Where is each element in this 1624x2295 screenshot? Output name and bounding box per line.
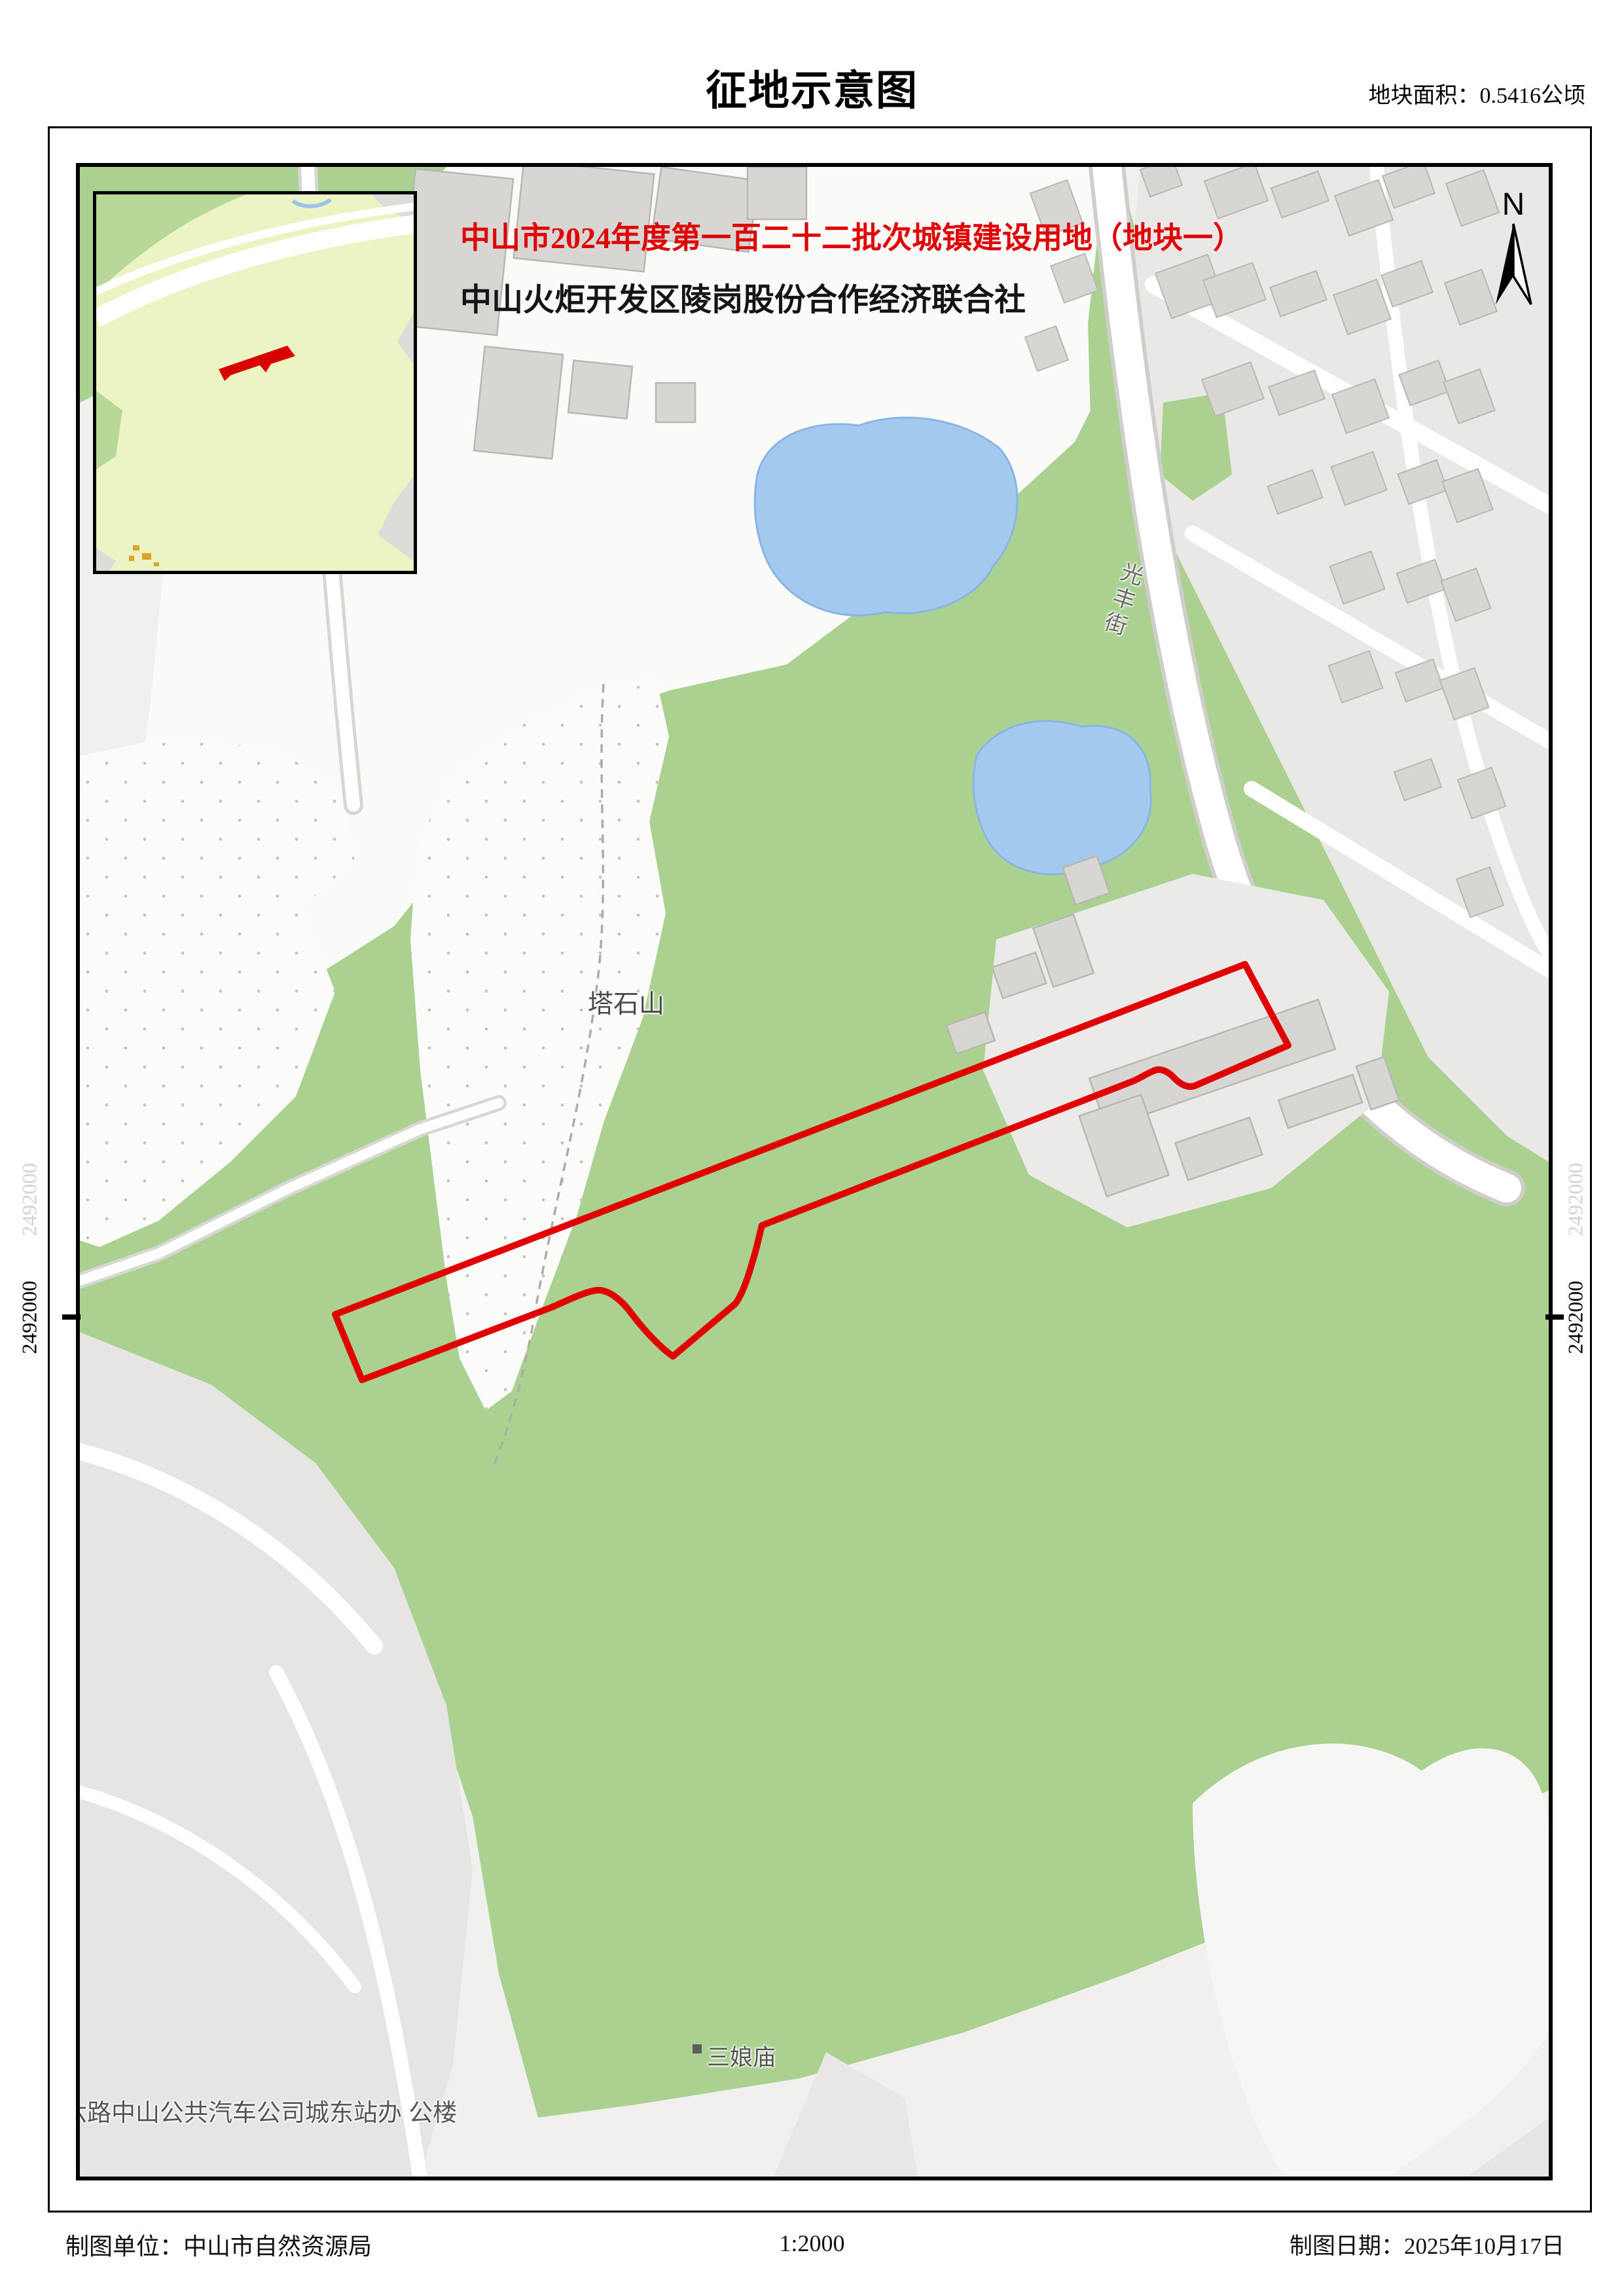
north-arrow-label: N — [1481, 187, 1546, 223]
temple-icon — [693, 2044, 702, 2053]
inset-map — [93, 191, 417, 574]
grid-coordinate-right-ghost: 2492000 — [1564, 1161, 1588, 1239]
grid-tick-right — [1545, 1314, 1564, 1320]
land-acquisition-map-sheet: 征地示意图 地块面积：0.5416公顷 — [0, 0, 1624, 2295]
grid-coordinate-left-ghost: 2492000 — [18, 1161, 42, 1239]
hill-name-label: 塔石山 — [588, 984, 664, 1021]
bus-station-label: 六路中山公共汽车公司城东站办 公楼 — [76, 2093, 457, 2128]
pond-small — [973, 721, 1151, 874]
north-arrow: N — [1481, 187, 1546, 311]
grid-coordinate-left: 2492000 — [18, 1278, 42, 1357]
pond-large — [755, 418, 1017, 615]
grid-coordinate-right: 2492000 — [1564, 1278, 1588, 1357]
batch-heading: 中山市2024年度第一百二十二批次城镇建设用地（地块一） — [460, 214, 1243, 257]
cooperative-heading: 中山火炬开发区陵岗股份合作经济联合社 — [460, 274, 1026, 319]
footer-date: 制图日期：2025年10月17日 — [1290, 2228, 1564, 2261]
grid-tick-left — [62, 1314, 81, 1320]
north-arrow-needle — [1481, 223, 1546, 308]
temple-name-label: 三娘庙 — [707, 2039, 776, 2072]
inset-canvas — [96, 194, 414, 571]
plot-area-label: 地块面积：0.5416公顷 — [1369, 77, 1586, 109]
